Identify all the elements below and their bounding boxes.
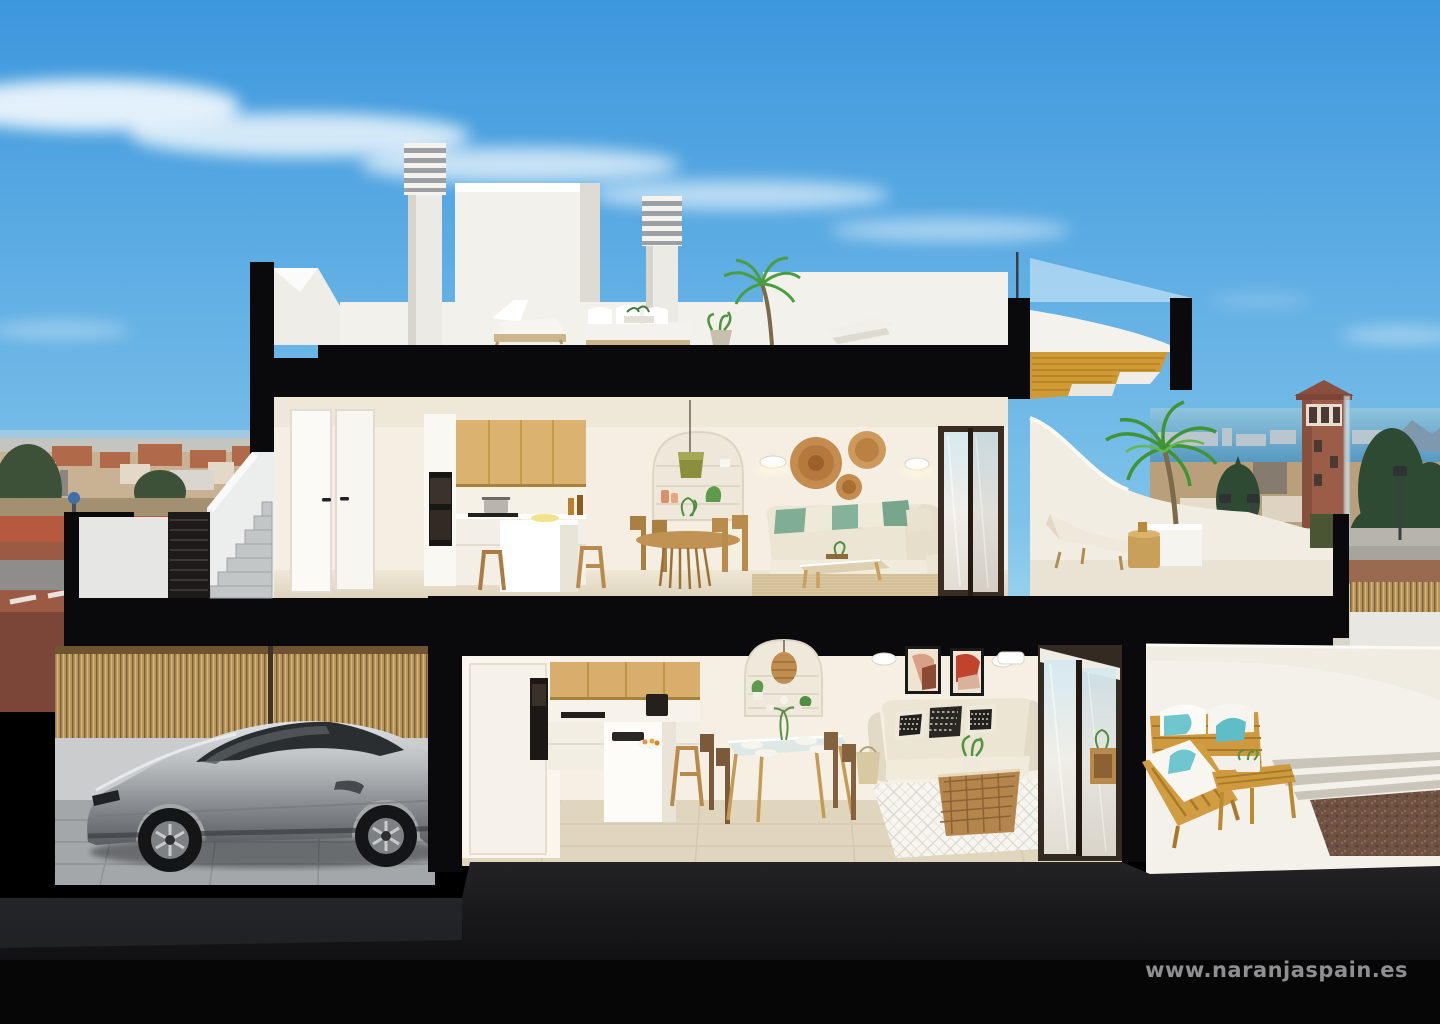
sliding-door-upper xyxy=(938,426,1004,598)
garage-wall-cut-column xyxy=(428,646,462,872)
roof-slab-cut xyxy=(272,345,1008,397)
upper-floor xyxy=(274,397,1008,600)
ground xyxy=(0,862,1440,1024)
kitchen-island-lower xyxy=(604,722,676,822)
wall-art-1 xyxy=(905,646,941,694)
storage-basket xyxy=(856,747,880,784)
rug-upper xyxy=(752,574,968,596)
terrace-wall-cut-column xyxy=(1122,640,1146,862)
upper-cabinets-wood-lower xyxy=(550,662,700,700)
car-wheel-rear xyxy=(355,805,417,867)
watermark: www.naranjaspain.es xyxy=(1145,958,1408,982)
lower-terrace xyxy=(1142,645,1440,876)
hall-door-1 xyxy=(291,410,331,592)
render-canvas: www.naranjaspain.es xyxy=(0,0,1440,1024)
wall-art-2 xyxy=(950,648,984,696)
bamboo-fence-right xyxy=(1348,582,1440,616)
cooking-pot xyxy=(482,497,510,513)
gravel-bed xyxy=(1310,790,1440,856)
ac-unit xyxy=(998,652,1024,664)
louver-gate xyxy=(168,512,210,598)
arch-niche-lower xyxy=(745,640,822,716)
sliding-door-lower xyxy=(1038,645,1122,861)
garage xyxy=(55,646,462,885)
car-wheel-front xyxy=(138,808,202,872)
kitchen-upper xyxy=(424,414,604,592)
hall-door-2 xyxy=(336,410,374,590)
kitchen-island-upper xyxy=(500,514,578,592)
chimney-1 xyxy=(404,143,446,345)
lower-floor xyxy=(462,640,1122,866)
